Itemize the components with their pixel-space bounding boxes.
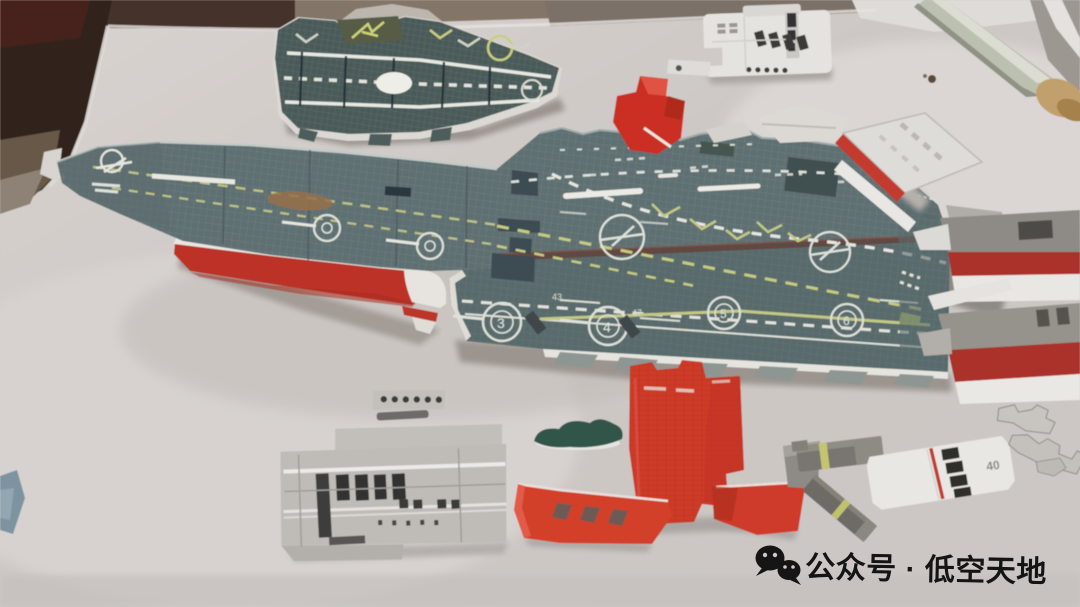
svg-text:47: 47 [632,308,642,318]
svg-text:6: 6 [843,314,850,328]
svg-text:4: 4 [603,319,611,335]
svg-text:3: 3 [497,315,505,331]
svg-text:43: 43 [552,292,562,302]
svg-text:5: 5 [720,307,727,321]
svg-text:40: 40 [985,458,1001,474]
svg-text:公众号 · 低空天地: 公众号 · 低空天地 [805,551,1047,589]
